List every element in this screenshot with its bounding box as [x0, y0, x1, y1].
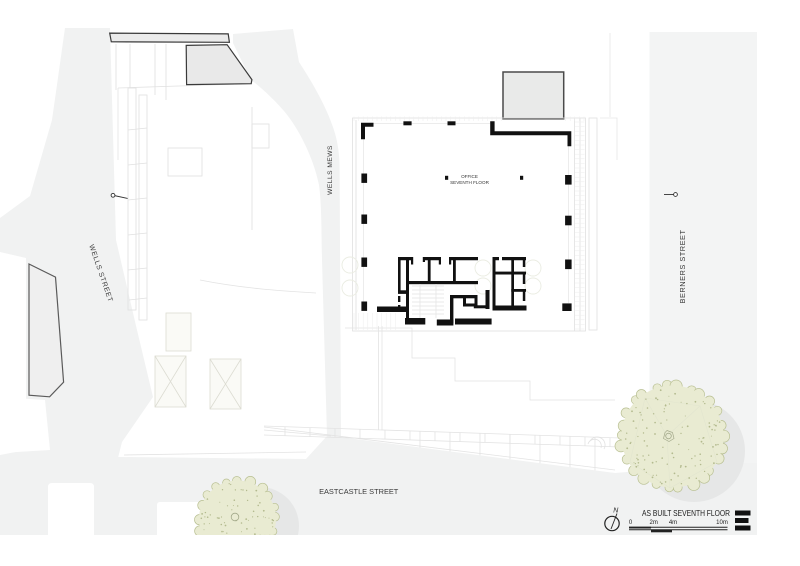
svg-text:WELLS MEWS: WELLS MEWS	[327, 145, 334, 195]
svg-text:10m: 10m	[716, 520, 728, 526]
svg-text:4m: 4m	[669, 520, 677, 526]
svg-text:OFFICE: OFFICE	[461, 174, 478, 179]
svg-text:2m: 2m	[650, 520, 658, 526]
svg-text:BERNERS STREET: BERNERS STREET	[678, 230, 687, 304]
svg-text:AS BUILT SEVENTH FLOOR: AS BUILT SEVENTH FLOOR	[642, 509, 730, 518]
svg-text:EASTCASTLE STREET: EASTCASTLE STREET	[319, 487, 399, 496]
svg-text:SEVENTH FLOOR: SEVENTH FLOOR	[450, 180, 489, 185]
